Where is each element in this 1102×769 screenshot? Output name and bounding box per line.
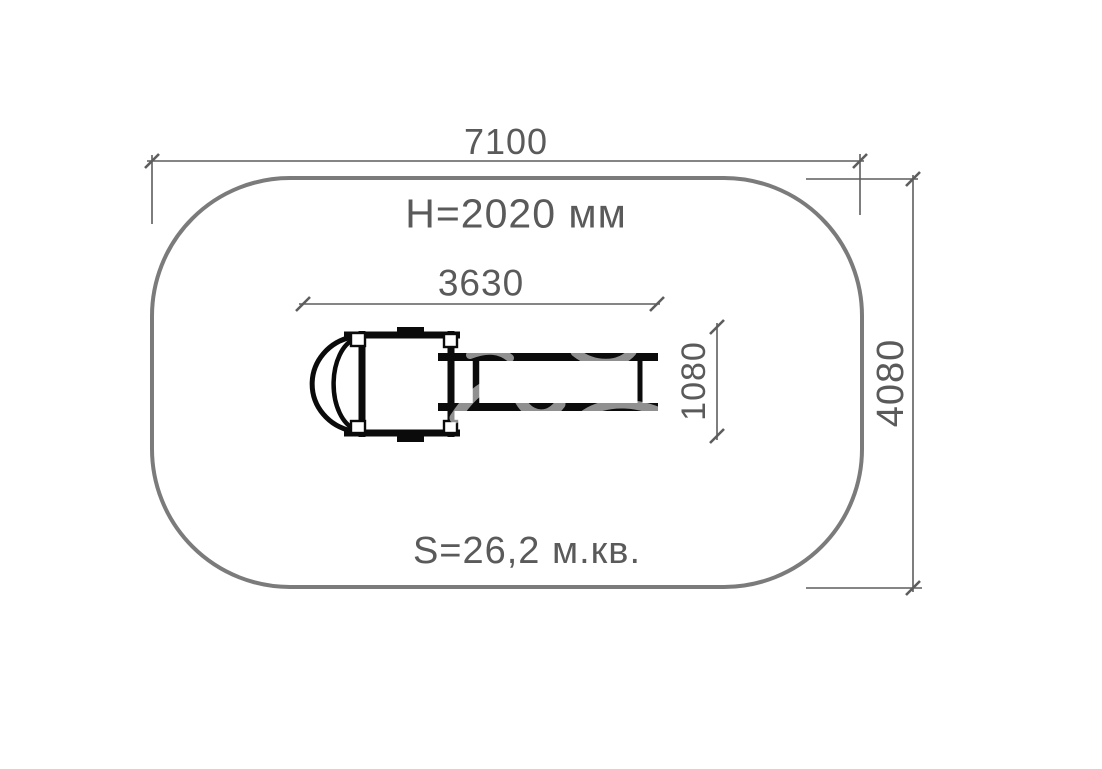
overall-width-dimension-label: 7100 [464,124,548,160]
platform-tab [397,327,424,442]
safety-area-label: S=26,2 м.кв. [413,532,641,570]
equipment-height-label: H=2020 мм [405,194,627,235]
slide-end-arc [312,337,355,431]
equipment-width-dimension-label: 1080 [677,341,711,421]
overall-depth-dimension-label: 4080 [872,339,910,428]
platform-corner-post [351,333,457,433]
plan-drawing-canvas [0,0,1102,769]
plan-drawing: 7100 H=2020 мм 3630 1080 4080 S=26,2 м.к… [0,0,1102,769]
slide-top-view [312,327,660,442]
equipment-length-dimension-label: 3630 [438,265,524,302]
